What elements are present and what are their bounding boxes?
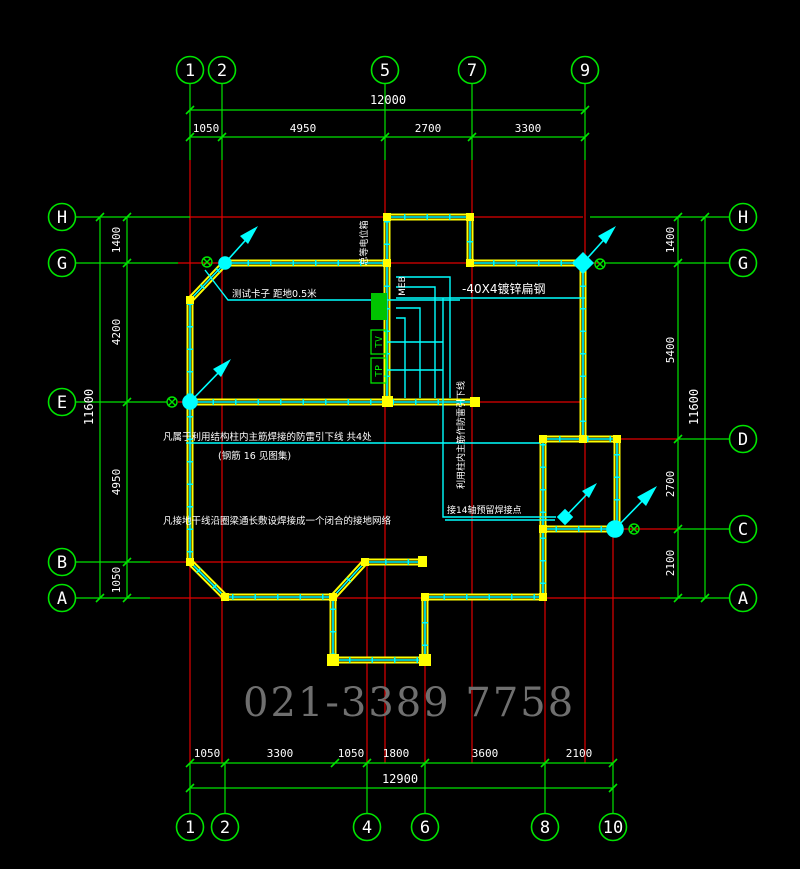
drawing-background (0, 0, 800, 869)
meb-label: MEB (398, 276, 408, 296)
dim-top-total: 12000 (370, 93, 406, 107)
axis-label-bottom: 1 (185, 818, 195, 838)
dim-right-seg: 2100 (664, 550, 677, 577)
axis-label-bottom: 4 (362, 818, 372, 838)
axis-label-right: G (738, 254, 748, 274)
meb-box (371, 293, 387, 320)
dim-left-seg: 1050 (110, 567, 123, 594)
axis-label-top: 9 (580, 61, 590, 81)
axis-label-left: G (57, 254, 67, 274)
axis-label-bottom: 10 (603, 818, 623, 838)
riser-note: 利用柱内主筋作防雷引下线 (455, 381, 467, 489)
weld-point-note: 接14轴预留焊接点 (447, 504, 521, 516)
dim-top-seg: 4950 (290, 122, 317, 135)
dim-right-seg: 1400 (664, 227, 677, 254)
dim-right-seg: 2700 (664, 471, 677, 498)
dim-left-total: 11600 (82, 389, 96, 425)
dim-bottom-seg: 3300 (267, 747, 294, 760)
dim-top-seg: 2700 (415, 122, 442, 135)
axis-label-right: A (738, 589, 748, 609)
ring-note: 凡接地干线沿圈梁通长敷设焊接成一个闭合的接地网络 (163, 515, 392, 527)
downlead-note-line1: 凡属于利用结构柱内主筋焊接的防雷引下线 共4处 (163, 431, 372, 443)
axis-label-right: D (738, 430, 748, 450)
watermark-phone: 021-3389 7758 (243, 680, 575, 726)
tv-label: TV (374, 336, 385, 348)
downlead-note-line2: (钢筋 16 见图集) (218, 450, 291, 462)
axis-label-left: B (57, 553, 67, 573)
axis-label-top: 7 (467, 61, 477, 81)
axis-label-left: H (57, 208, 67, 228)
cad-canvas[interactable]: TV TP MEB 总等电位箱 测试卡子 距地0.5米 -40X4镀锌扁钢 凡属… (0, 0, 800, 869)
dim-bottom-seg: 1800 (383, 747, 410, 760)
dim-left-seg: 1400 (110, 227, 123, 254)
axis-label-top: 1 (185, 61, 195, 81)
meb-box-label: 总等电位箱 (358, 220, 370, 265)
axis-label-bottom: 8 (540, 818, 550, 838)
axis-label-bottom: 2 (220, 818, 230, 838)
axis-label-left: E (57, 393, 67, 413)
axis-label-bottom: 6 (420, 818, 430, 838)
dim-top-seg: 1050 (193, 122, 220, 135)
dim-bottom-seg: 2100 (566, 747, 593, 760)
dim-bottom-seg: 3600 (472, 747, 499, 760)
axis-label-right: H (738, 208, 748, 228)
axis-label-top: 5 (380, 61, 390, 81)
dim-left-seg: 4200 (110, 319, 123, 346)
dim-top-seg: 3300 (515, 122, 542, 135)
dim-right-seg: 5400 (664, 337, 677, 364)
dim-bottom-seg: 1050 (338, 747, 365, 760)
flat-steel-note: -40X4镀锌扁钢 (462, 282, 545, 296)
axis-label-left: A (57, 589, 67, 609)
axis-label-top: 2 (217, 61, 227, 81)
dim-bottom-seg: 1050 (194, 747, 221, 760)
axis-label-right: C (738, 520, 748, 540)
dim-left-seg: 4950 (110, 469, 123, 496)
test-clamp-note: 测试卡子 距地0.5米 (232, 288, 317, 300)
tp-label: TP (374, 365, 385, 377)
dim-bottom-total: 12900 (382, 772, 418, 786)
dim-right-total: 11600 (687, 389, 701, 425)
